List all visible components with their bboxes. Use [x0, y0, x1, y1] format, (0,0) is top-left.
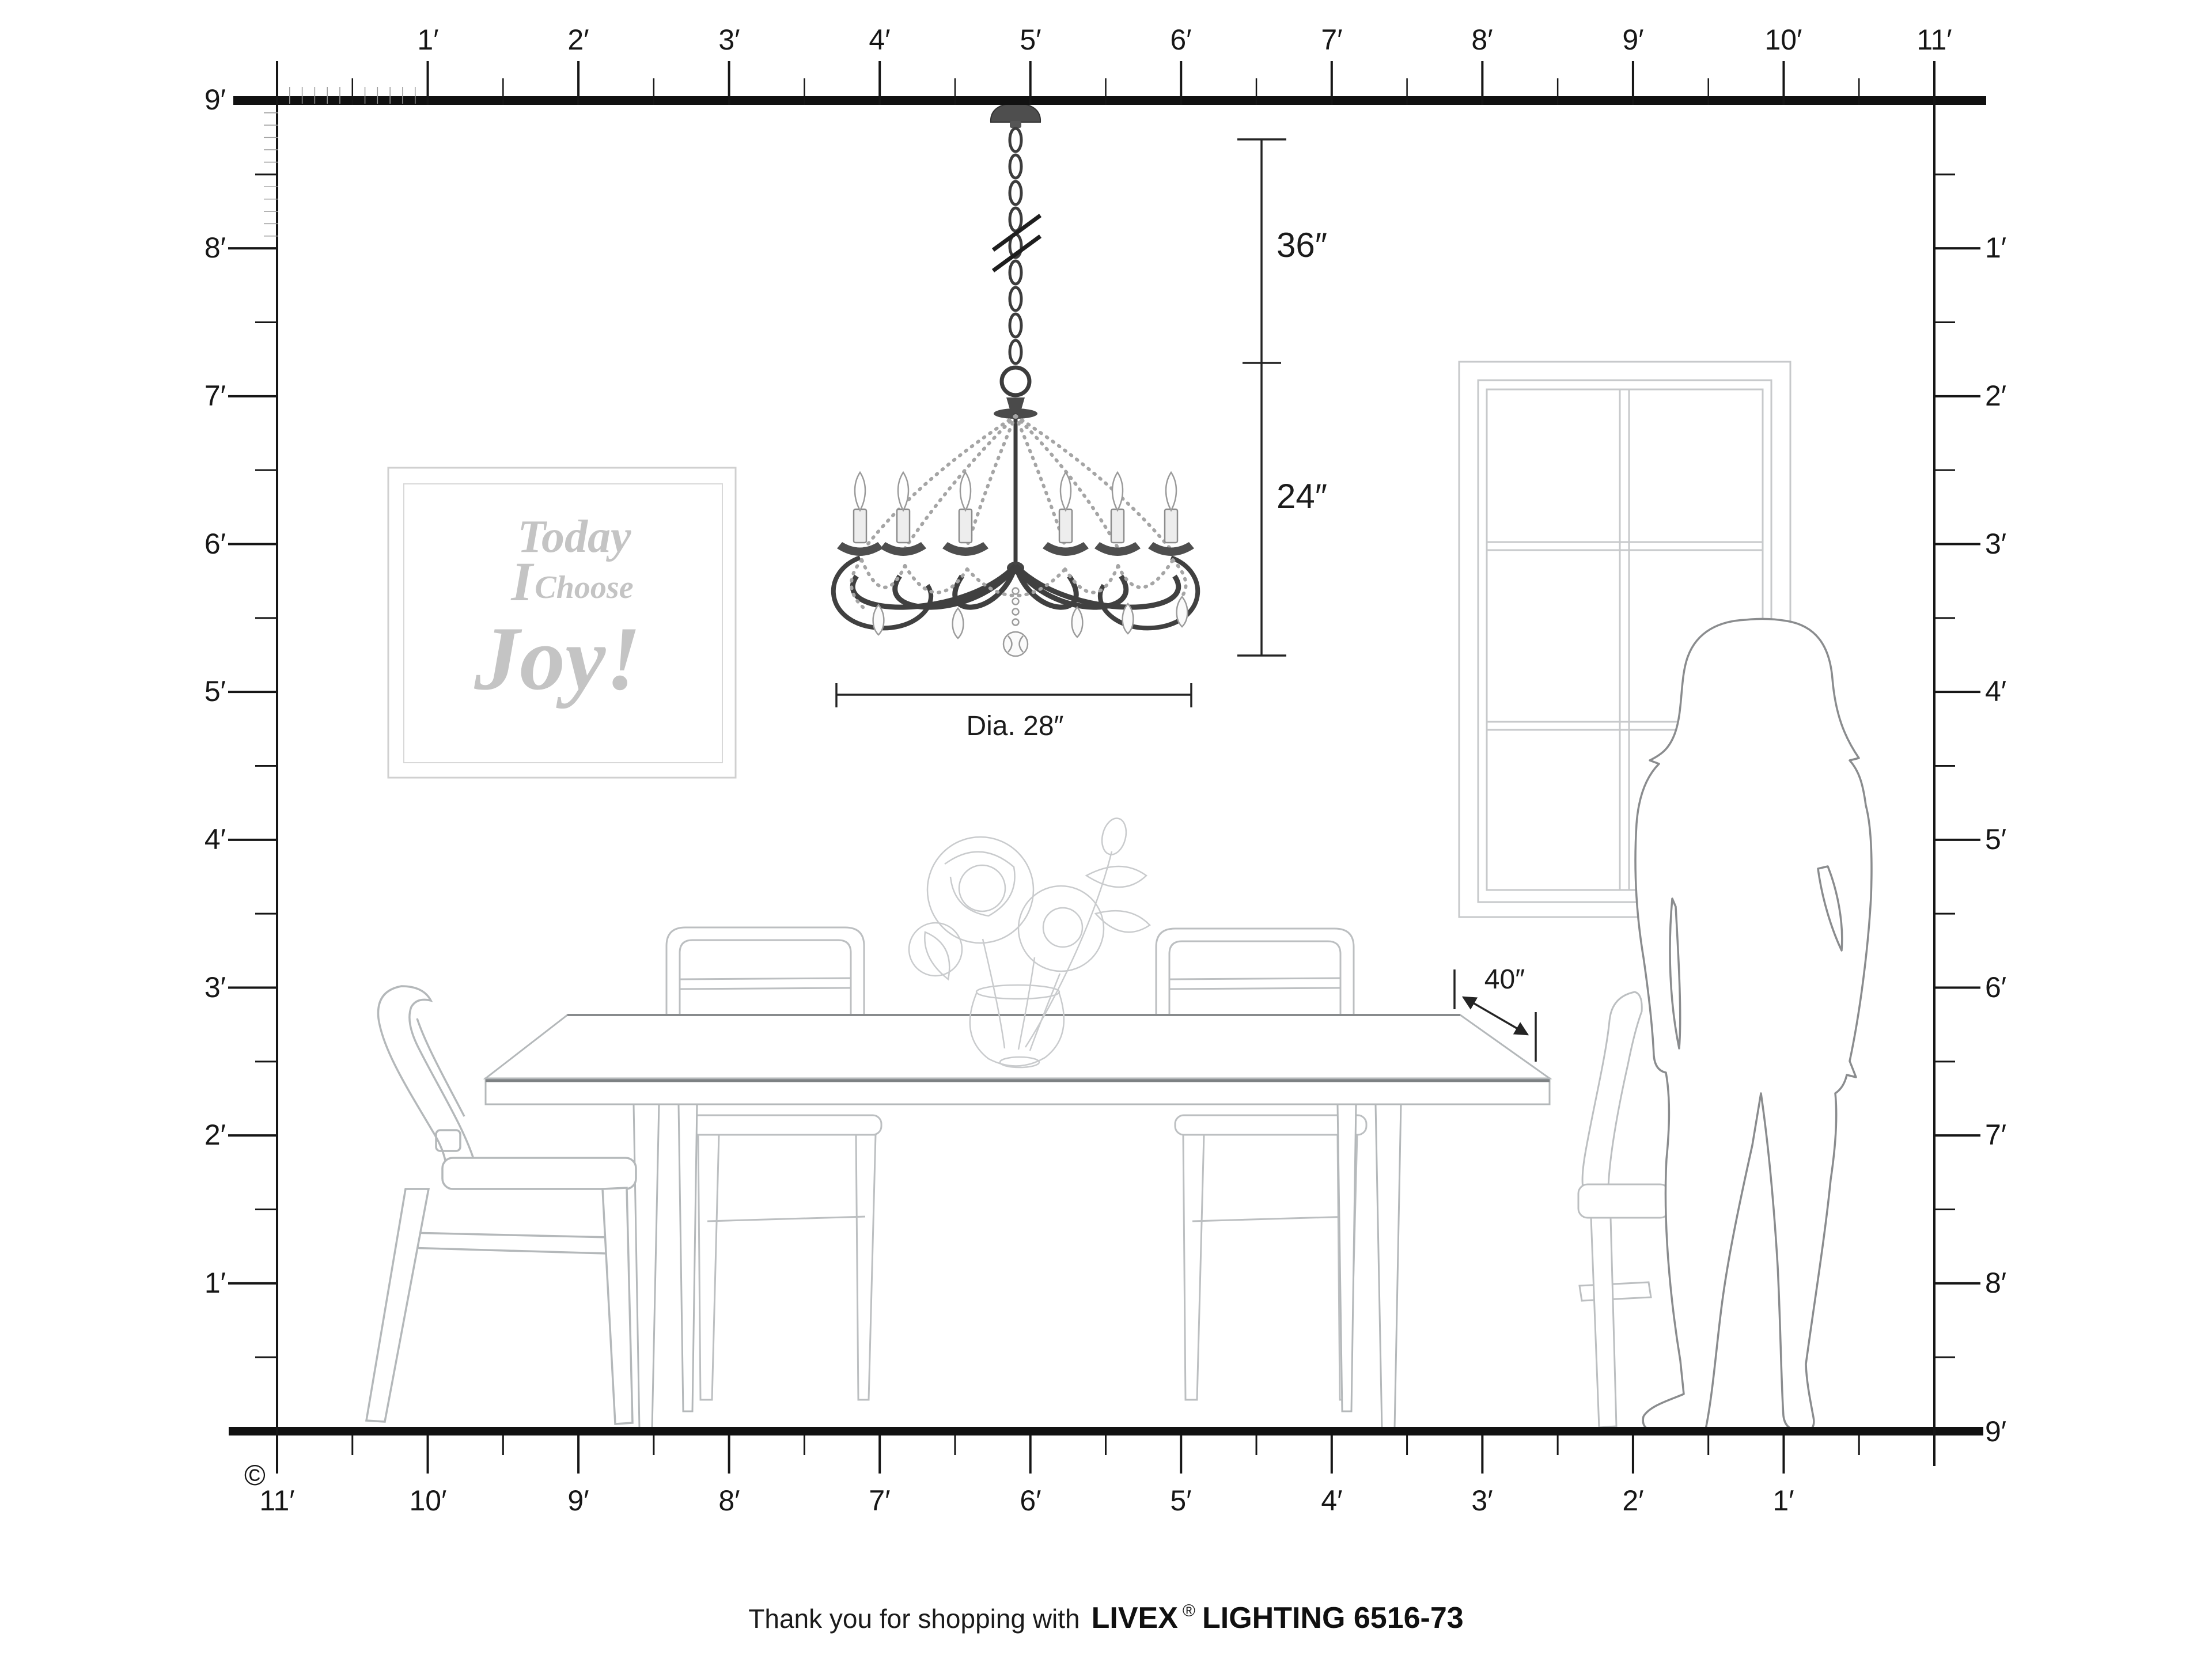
chain-link: [1010, 314, 1021, 337]
bead-strand: [862, 416, 1016, 552]
table-top: [486, 1015, 1550, 1078]
ruler-label: 6′: [204, 528, 226, 560]
bead-strand: [1016, 416, 1173, 552]
chair-stretcher: [1192, 1217, 1350, 1221]
footer-message: Thank you for shopping with: [748, 1604, 1080, 1634]
ruler-label: 4′: [869, 24, 890, 56]
chain-link: [1010, 340, 1021, 363]
peony-center: [1043, 908, 1082, 947]
copyright-mark: ©: [244, 1459, 266, 1491]
ruler-label: 5′: [1020, 24, 1041, 56]
chair-stretcher: [1580, 1282, 1651, 1301]
ruler-label: 7′: [204, 380, 226, 412]
chandelier-ring: [1002, 368, 1029, 395]
ruler-label: 9′: [567, 1484, 589, 1517]
ruler-label: 4′: [204, 823, 226, 855]
footer-brand: LIVEX: [1092, 1601, 1179, 1635]
ruler-label: 8′: [1985, 1267, 2006, 1299]
ruler-label: 1′: [417, 24, 438, 56]
ruler-label: 4′: [1985, 675, 2006, 707]
bobeche-cup: [1148, 542, 1194, 556]
chair-leg: [1591, 1218, 1616, 1427]
ruler-label: 7′: [1321, 24, 1342, 56]
candle-sleeve: [1059, 509, 1072, 543]
fixture-diameter-label: Dia. 28″: [966, 711, 1063, 741]
chair-leg: [856, 1135, 876, 1400]
teardrop-crystal: [953, 608, 964, 638]
chandelier-arm: [1016, 566, 1126, 607]
chandelier: [834, 103, 1198, 656]
bead: [1013, 609, 1019, 615]
bead: [1013, 619, 1019, 626]
ruler-label: 3′: [204, 971, 226, 1003]
table-apron: [486, 1078, 1550, 1104]
teardrop-crystal: [1072, 607, 1083, 637]
ruler-label: 4′: [1321, 1484, 1342, 1517]
footer-product-number: LIGHTING 6516-73: [1202, 1601, 1464, 1635]
bobeche-cup: [1043, 542, 1089, 556]
chandelier-canopy: [991, 103, 1040, 122]
floor-line: [229, 1427, 1983, 1435]
chair-seat: [442, 1158, 636, 1189]
teardrop-crystal: [873, 605, 884, 635]
peony-bloom: [1018, 886, 1104, 971]
right-ruler-ticks: [1933, 175, 1980, 1357]
chair-stretcher: [407, 1233, 609, 1253]
ball-crystal: [1003, 632, 1028, 656]
ruler-label: 7′: [869, 1484, 890, 1517]
ruler-label: 6′: [1020, 1484, 1041, 1517]
leaf: [1086, 866, 1146, 887]
chair-stretcher: [707, 1217, 865, 1221]
ruler-label: 1′: [204, 1267, 226, 1299]
chandelier-collar: [1010, 121, 1021, 128]
dining-table: [486, 1015, 1550, 1429]
flower-bud: [1099, 816, 1130, 857]
chair-seat: [690, 1115, 881, 1135]
dimension-vertical: 36″ 24″: [1237, 139, 1327, 656]
teardrop-crystal: [1177, 597, 1188, 627]
left-ruler-labels: 9′ 8′ 7′ 6′ 5′ 4′ 3′ 2′ 1′: [204, 84, 226, 1299]
ruler-label: 9′: [204, 84, 226, 116]
fixture-height-label: 24″: [1277, 477, 1327, 516]
chair-seat: [1578, 1184, 1669, 1218]
ruler-label: 9′: [1622, 24, 1643, 56]
ruler-label: 10′: [1765, 24, 1802, 56]
ruler-label: 8′: [718, 1484, 740, 1517]
window-mullion-horizontal-1: [1487, 542, 1763, 550]
bead-strand: [1016, 416, 1065, 546]
bead: [1013, 599, 1019, 605]
ruler-label: 6′: [1170, 24, 1191, 56]
ruler-label: 5′: [1985, 823, 2006, 855]
table-leg-front-left: [634, 1104, 659, 1429]
chain-link: [1010, 287, 1021, 310]
ruler-label: 8′: [1471, 24, 1493, 56]
art-text-line3: Joy!: [474, 608, 641, 709]
art-text-verb: Choose: [535, 570, 633, 605]
scale-room-diagram: Today I Choose Joy!: [0, 0, 2212, 1659]
woman-silhouette: [1635, 619, 1872, 1432]
vase-rim: [976, 985, 1059, 999]
chair-leg: [698, 1135, 719, 1400]
chain-link: [1010, 181, 1021, 204]
chain-break-mark: [993, 215, 1040, 250]
bobeche-cup: [837, 542, 883, 556]
ruler-label: 2′: [1622, 1484, 1643, 1517]
ruler-label: 3′: [1985, 528, 2006, 560]
ruler-label: 9′: [1985, 1415, 2006, 1448]
bobeche-cup: [942, 542, 988, 556]
dimension-diameter: Dia. 28″: [836, 683, 1191, 741]
chain-break-mark: [993, 236, 1040, 271]
ruler-label: 3′: [1471, 1484, 1493, 1517]
bead: [1013, 588, 1019, 594]
bobeche-cup: [880, 542, 926, 556]
chain-link: [1010, 208, 1021, 231]
table-leg-back-left: [679, 1104, 697, 1411]
candle-sleeve: [897, 509, 910, 543]
chain-link: [1010, 261, 1021, 284]
left-ruler-ticks: [228, 113, 278, 1357]
candle-sleeve: [1165, 509, 1177, 543]
ruler-label: 1′: [1772, 1484, 1794, 1517]
ruler-label: 2′: [204, 1119, 226, 1151]
dining-set: [366, 816, 1550, 1429]
art-text-pronoun: I: [510, 551, 535, 612]
candle-sleeve: [1111, 509, 1124, 543]
flame-bulb: [898, 472, 908, 510]
candle-sleeve: [959, 509, 972, 543]
ruler-label: 7′: [1985, 1119, 2006, 1151]
chair-rail: [680, 978, 851, 979]
peony-center: [959, 865, 1005, 911]
ruler-label: 8′: [204, 232, 226, 264]
ruler-label: 10′: [410, 1484, 447, 1517]
flame-bulb: [960, 472, 971, 510]
chair-rail: [1169, 988, 1340, 989]
table-clearance-label: 40″: [1484, 964, 1525, 995]
back-chair-right: [1156, 929, 1366, 1400]
peony-bloom: [927, 837, 1033, 943]
chandelier-crystals: [873, 588, 1188, 657]
chain-link: [1010, 155, 1021, 178]
window-mullion-vertical: [1620, 389, 1629, 890]
ruler-label: 6′: [1985, 971, 2006, 1003]
registered-trademark-icon: ®: [1183, 1601, 1195, 1620]
top-ruler-labels: 1′ 2′ 3′ 4′ 5′ 6′ 7′ 8′ 9′ 10′ 11′: [417, 24, 1952, 56]
chair-rail: [680, 988, 851, 989]
chair-leg: [1183, 1135, 1204, 1400]
chair-back-post: [1582, 992, 1642, 1188]
ruler-label: 11′: [1916, 24, 1952, 56]
ruler-label: 2′: [567, 24, 589, 56]
candle-sleeve: [854, 509, 866, 543]
ruler-label: 5′: [204, 675, 226, 707]
flame-bulb: [855, 472, 865, 510]
right-ruler-labels: 1′ 2′ 3′ 4′ 5′ 6′ 7′ 8′ 9′: [1985, 232, 2006, 1448]
chair-leg-back: [366, 1189, 429, 1422]
table-leg-front-right: [1376, 1104, 1401, 1429]
bottom-ruler-labels: 11′ 10′ 9′ 8′ 7′ 6′ 5′ 4′ 3′ 2′ 1′: [259, 1484, 1794, 1517]
leaf: [925, 932, 949, 979]
scale-figure-woman: [1635, 619, 1872, 1432]
chain-length-label: 36″: [1277, 226, 1327, 264]
art-text-line1: Today: [517, 512, 631, 562]
chandelier-chain: [1010, 128, 1021, 363]
chair-leg-front: [603, 1188, 632, 1424]
chain-link: [1010, 128, 1021, 151]
flame-bulb: [1060, 472, 1071, 510]
wall-art-frame: Today I Choose Joy!: [388, 468, 736, 778]
bead-strand: [967, 416, 1016, 546]
ceiling-line: [233, 96, 1986, 105]
flame-bulb: [1112, 472, 1123, 510]
flame-bulb: [1166, 472, 1176, 510]
bottom-ruler-ticks: [277, 1435, 1859, 1474]
ruler-label: 2′: [1985, 380, 2006, 412]
ruler-label: 3′: [718, 24, 740, 56]
ruler-label: 5′: [1170, 1484, 1191, 1517]
ruler-label: 1′: [1985, 232, 2006, 264]
chair-rail: [1169, 978, 1340, 979]
bobeche-cup: [1094, 542, 1141, 556]
back-chair-left: [666, 927, 881, 1400]
footer-caption: Thank you for shopping with LIVEX ® LIGH…: [748, 1601, 1463, 1635]
